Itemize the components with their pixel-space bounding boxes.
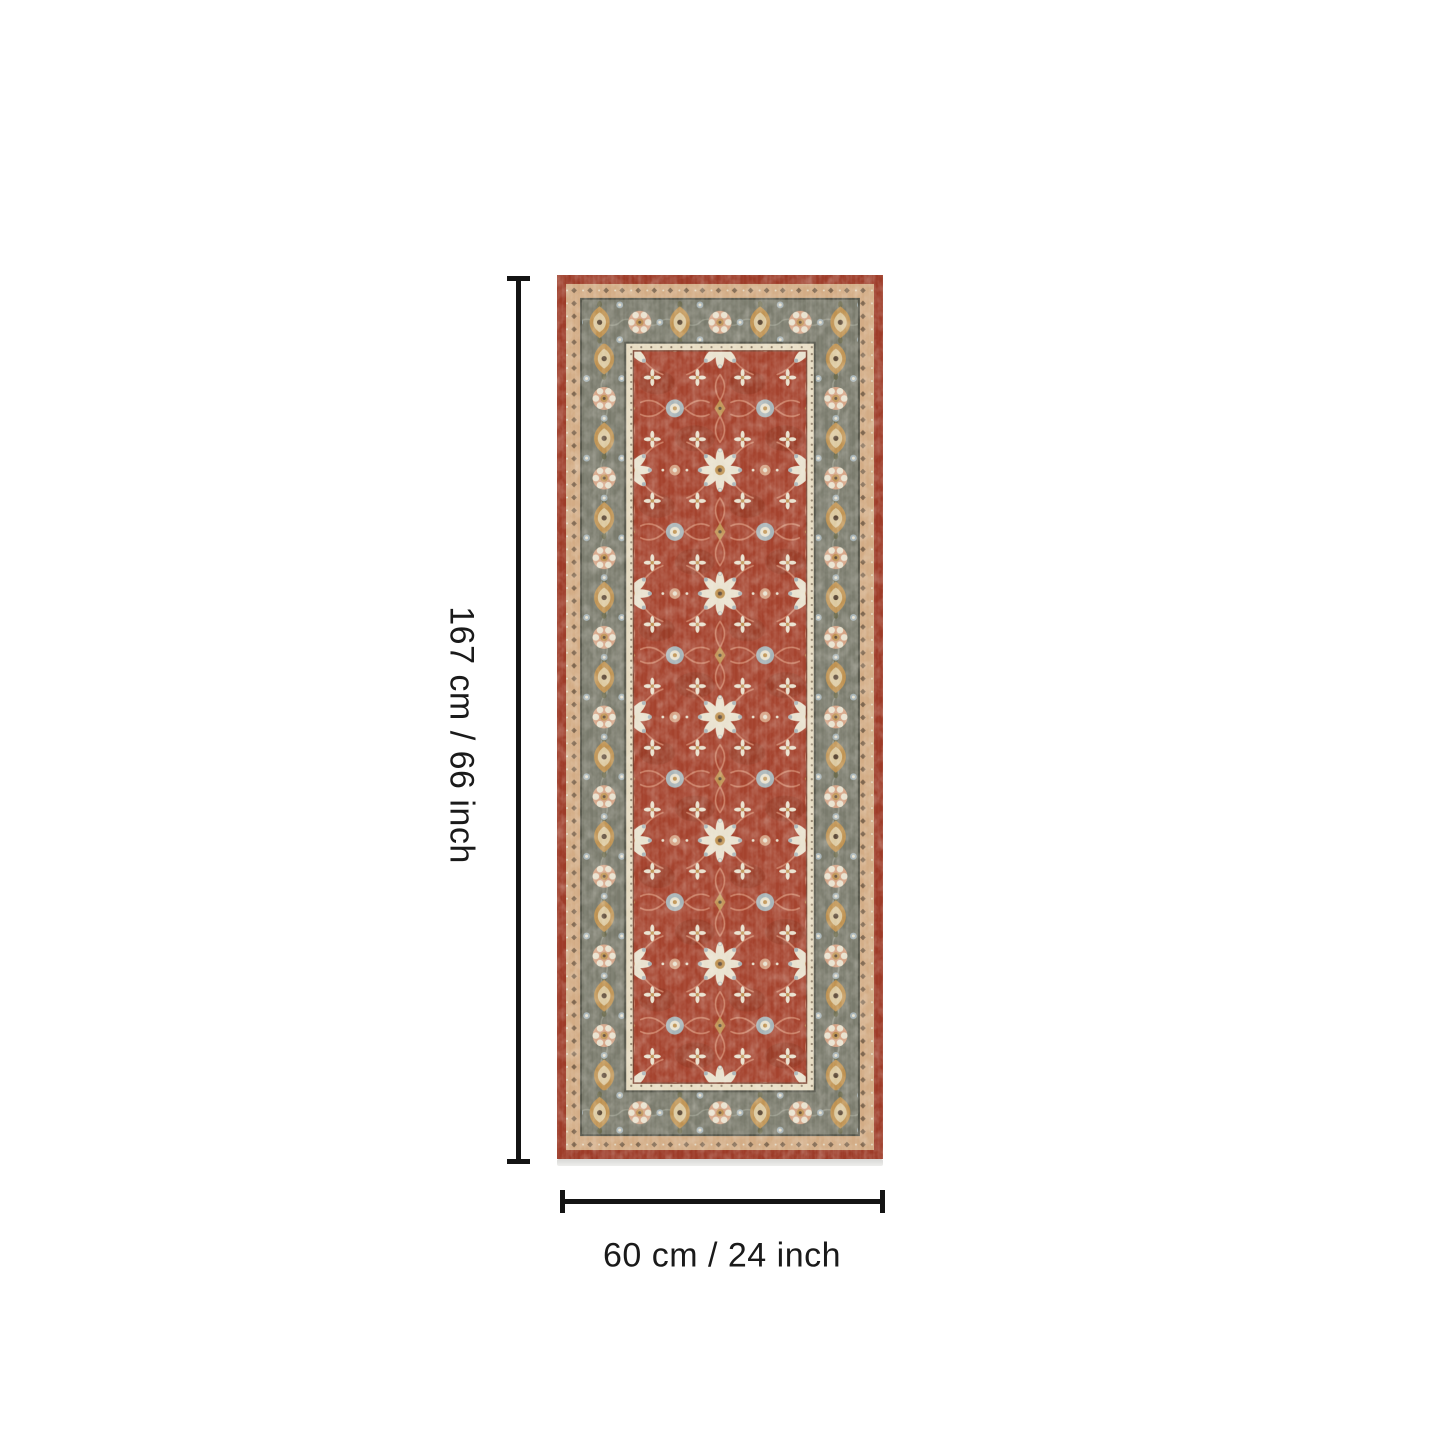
rug-image [557,275,883,1159]
height-dimension-line [516,276,521,1164]
size-diagram-canvas: 167 cm / 66 inch 60 cm / 24 inch [0,0,1445,1445]
height-dimension-label: 167 cm / 66 inch [442,606,481,863]
width-dimension-line [560,1199,885,1204]
width-line-right-cap [880,1190,885,1213]
width-dimension-label: 60 cm / 24 inch [603,1237,841,1276]
rug-shadow [557,1159,883,1166]
width-line-left-cap [560,1190,565,1213]
height-line-top-cap [507,276,530,281]
rug-artwork [557,275,883,1159]
height-line-bottom-cap [507,1159,530,1164]
